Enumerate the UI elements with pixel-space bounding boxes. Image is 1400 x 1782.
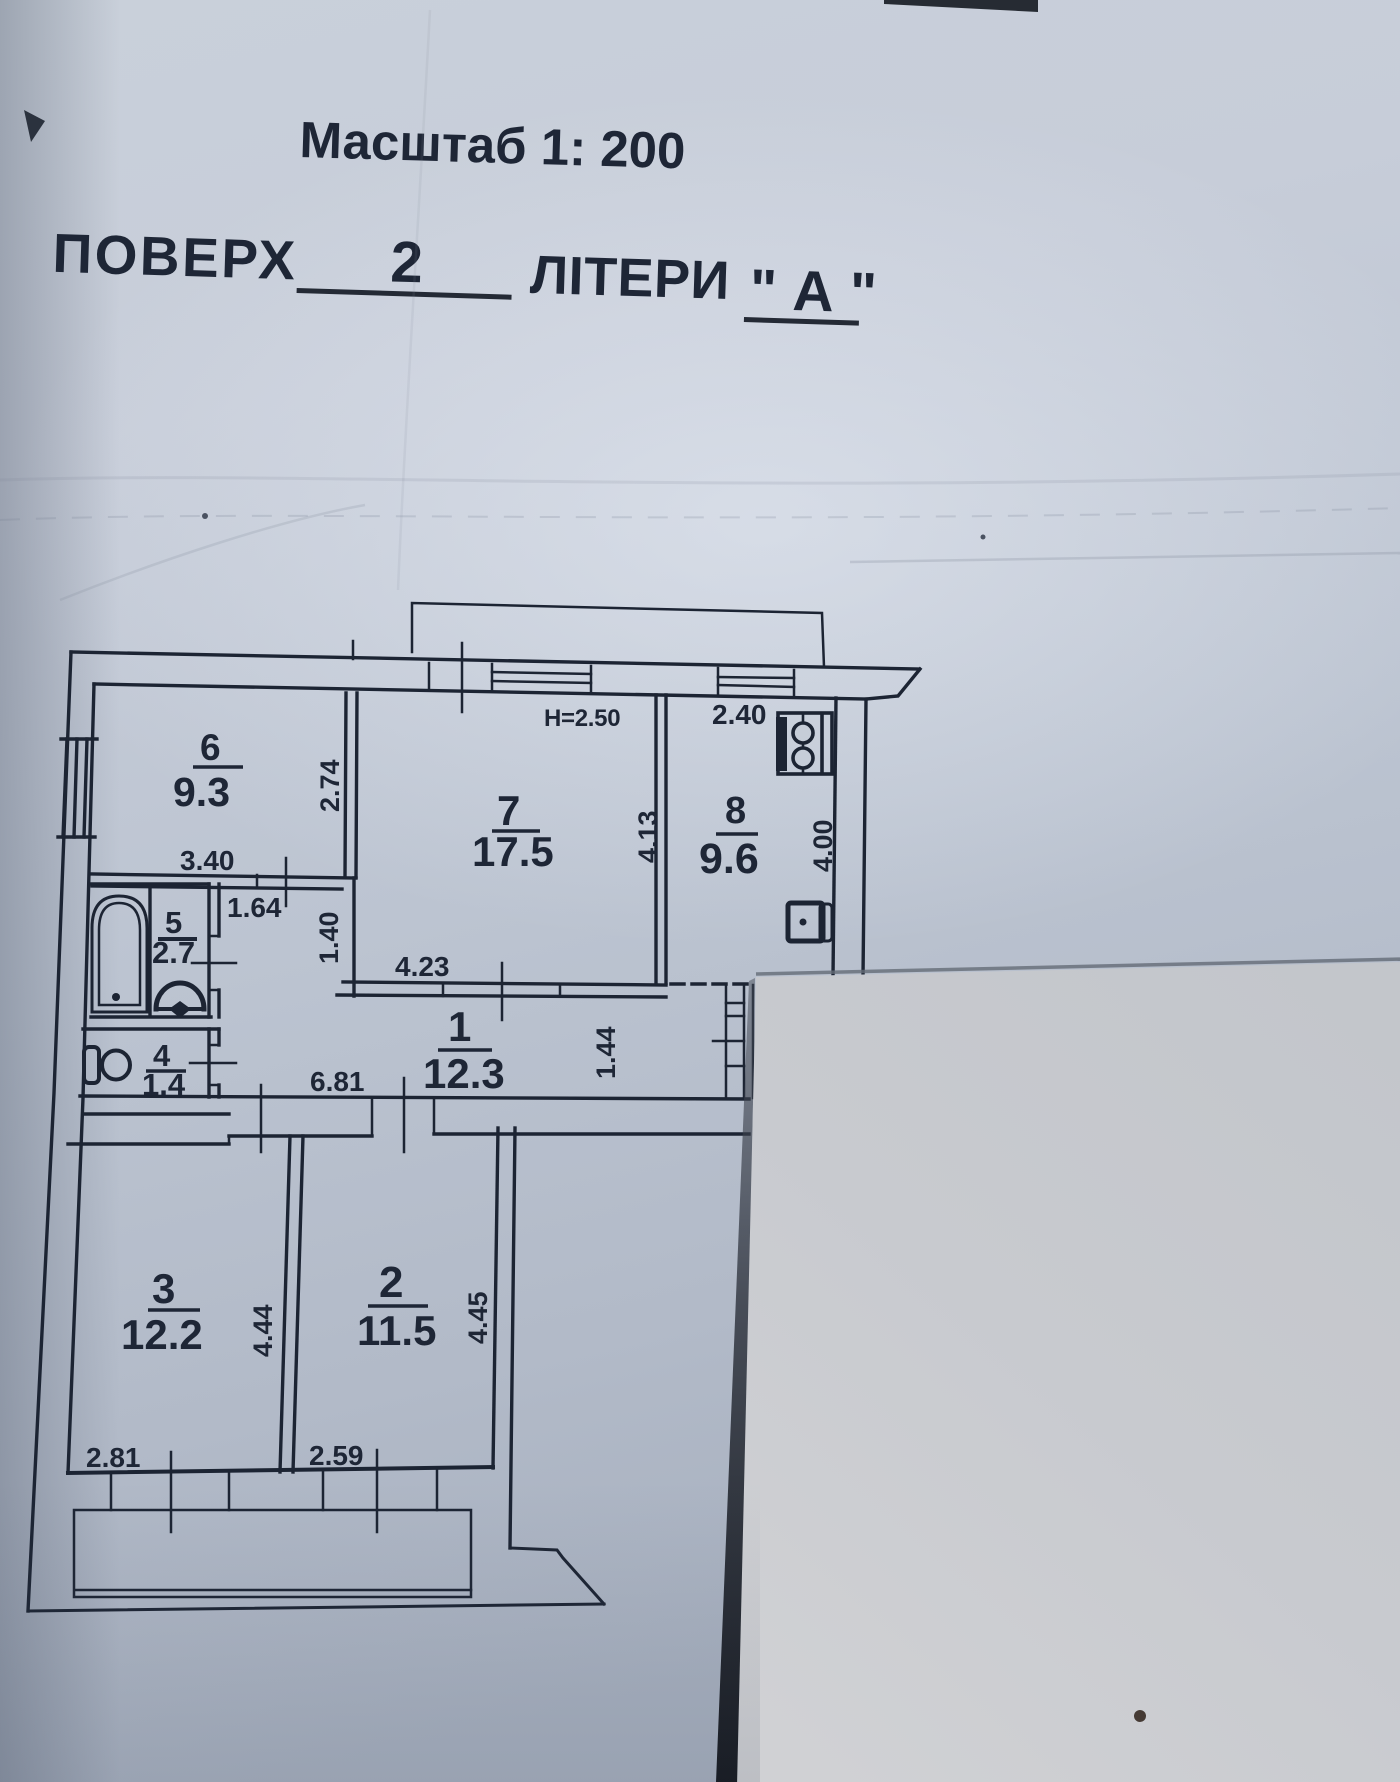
svg-text:2.74: 2.74: [315, 759, 345, 812]
svg-text:2: 2: [379, 1258, 403, 1307]
svg-text:Масштаб 1: 200: Масштаб 1: 200: [299, 111, 686, 179]
svg-text:2.7: 2.7: [152, 935, 195, 970]
svg-text:3.40: 3.40: [180, 845, 235, 876]
svg-text:2.59: 2.59: [309, 1440, 364, 1471]
svg-text:1.64: 1.64: [227, 892, 282, 923]
svg-text:12.2: 12.2: [121, 1311, 203, 1358]
svg-text:1.4: 1.4: [142, 1067, 186, 1102]
svg-text:2.81: 2.81: [86, 1442, 141, 1473]
svg-text:1: 1: [448, 1003, 471, 1050]
svg-text:2.40: 2.40: [712, 699, 767, 730]
svg-text:4.13: 4.13: [633, 810, 663, 863]
svg-text:7: 7: [497, 787, 520, 834]
svg-text:4.23: 4.23: [395, 951, 450, 982]
svg-text:4.44: 4.44: [248, 1304, 278, 1357]
svg-text:11.5: 11.5: [357, 1307, 436, 1354]
svg-text:8: 8: [725, 790, 746, 832]
svg-text:H=2.50: H=2.50: [544, 705, 620, 732]
svg-text:4.00: 4.00: [808, 819, 838, 872]
svg-text:12.3: 12.3: [423, 1050, 505, 1097]
svg-text:3: 3: [152, 1265, 175, 1312]
svg-text:1.40: 1.40: [314, 911, 344, 964]
svg-text:2: 2: [390, 229, 424, 295]
svg-text:4.45: 4.45: [463, 1291, 493, 1344]
svg-text:9.3: 9.3: [173, 769, 230, 815]
svg-text:6: 6: [200, 727, 221, 768]
svg-text:6.81: 6.81: [310, 1066, 365, 1097]
svg-text:" А ": " А ": [749, 258, 878, 326]
svg-text:17.5: 17.5: [472, 828, 554, 875]
svg-text:ПОВЕРХ: ПОВЕРХ: [52, 222, 299, 292]
svg-text:ЛІТЕРИ: ЛІТЕРИ: [529, 245, 731, 311]
svg-text:9.6: 9.6: [699, 835, 759, 883]
svg-text:1.44: 1.44: [591, 1026, 621, 1079]
